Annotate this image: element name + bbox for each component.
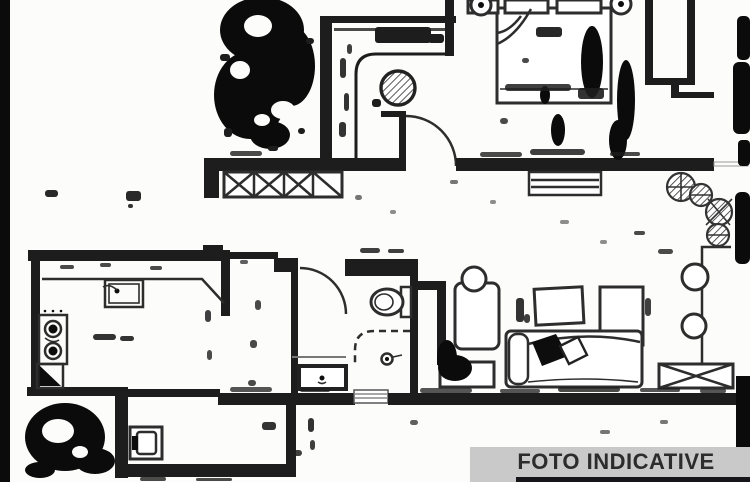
wall-segment — [687, 0, 695, 84]
potted-plants — [667, 173, 732, 246]
scan-speckle — [292, 450, 302, 456]
scan-speckle — [355, 195, 362, 200]
scan-speckle — [126, 191, 141, 201]
wall-segment — [127, 389, 220, 397]
scan-speckle — [536, 27, 562, 37]
scan-speckle — [522, 58, 529, 63]
scan-speckle — [308, 418, 314, 432]
wall-segment — [203, 245, 223, 253]
scan-speckle — [516, 298, 524, 322]
ink-blob-hole — [271, 101, 295, 119]
scan-speckle — [240, 260, 248, 264]
scan-speckle — [428, 34, 444, 43]
floor-plan-page: FOTO INDICATIVE — [0, 0, 750, 482]
scan-speckle — [610, 152, 640, 156]
scan-speckle — [560, 220, 569, 224]
counter-edge — [42, 279, 224, 303]
wall-segment — [274, 258, 298, 272]
wall-segment — [291, 272, 298, 395]
ink-blob — [581, 26, 603, 98]
scan-speckle — [310, 440, 315, 450]
ink-blob — [437, 340, 457, 376]
scan-speckle — [230, 387, 272, 392]
bottom-dark-strip — [516, 477, 750, 482]
scan-speckle — [388, 249, 404, 253]
scan-speckle — [150, 266, 162, 270]
ink-blob — [25, 462, 55, 478]
wall-segment — [320, 16, 332, 162]
stove-two-burners — [39, 310, 67, 364]
balcony-partition — [702, 247, 731, 364]
nightstand-lamp-right — [611, 0, 631, 14]
washing-machine — [130, 427, 162, 459]
scan-speckle — [347, 44, 352, 54]
round-hatched-table — [381, 71, 415, 105]
wall-segment — [28, 250, 230, 261]
wall-segment — [345, 259, 418, 276]
scan-speckle — [220, 54, 230, 61]
scan-speckle — [60, 265, 74, 269]
edge-ink-bar — [738, 140, 750, 166]
ink-blob — [551, 114, 565, 146]
wall-segment — [410, 259, 418, 397]
scan-speckle — [140, 477, 166, 481]
wall-segment — [115, 464, 296, 477]
wall-segment — [204, 158, 219, 198]
wall-segment — [645, 78, 695, 85]
wall-segment — [456, 158, 714, 171]
wall-segment — [228, 252, 278, 259]
scan-speckle — [268, 146, 278, 151]
scan-speckle — [196, 478, 232, 481]
wall-segment — [388, 393, 736, 405]
scan-speckle — [640, 388, 680, 392]
ink-blob-hole — [254, 114, 270, 126]
hallway-door-arc — [406, 116, 456, 166]
banner-label: FOTO INDICATIVE — [517, 449, 714, 475]
scan-speckle — [500, 389, 540, 393]
edge-ink-bar — [735, 192, 750, 264]
edge-ink-bar — [0, 0, 10, 482]
ink-blob — [267, 26, 315, 106]
scan-speckle — [700, 389, 726, 393]
scan-speckle — [490, 200, 496, 204]
scan-speckle — [207, 350, 212, 360]
scan-speckle — [480, 152, 522, 157]
ink-blob-hole — [244, 15, 272, 37]
wall-segment — [381, 111, 406, 117]
floor-plan-drawing — [0, 0, 750, 482]
scan-speckle — [530, 149, 585, 155]
scan-speckle — [250, 340, 257, 348]
scan-speckle — [360, 248, 380, 253]
scan-speckle — [600, 430, 610, 434]
floor-grate-x-box — [659, 364, 733, 388]
scan-speckle — [255, 300, 261, 310]
scan-speckle — [298, 128, 305, 134]
wall-segment — [645, 0, 653, 84]
armchair — [455, 267, 499, 349]
wall-segment — [221, 252, 230, 316]
stool-circle — [682, 264, 708, 290]
ink-blob — [250, 121, 290, 149]
scan-speckle — [248, 380, 256, 386]
ink-blob-hole — [42, 419, 74, 443]
scan-speckle — [230, 151, 262, 156]
toilet — [371, 287, 411, 317]
pillow-right — [557, 0, 601, 13]
scan-speckle — [205, 310, 211, 322]
sofa — [506, 331, 642, 387]
scan-noise-layer — [0, 0, 750, 482]
scan-speckle — [306, 38, 314, 44]
scan-speckle — [300, 388, 330, 392]
scan-speckle — [524, 314, 530, 323]
scan-speckle — [645, 298, 651, 316]
scan-speckle — [634, 231, 645, 235]
scan-speckle — [450, 180, 458, 184]
plant-circle — [462, 267, 486, 291]
wall-layer — [27, 0, 748, 478]
edge-ink-bar — [736, 376, 750, 447]
scan-speckle — [558, 387, 620, 392]
scan-speckle — [410, 420, 418, 425]
scan-speckle — [658, 249, 673, 254]
wall-segment — [286, 403, 296, 477]
scan-speckle — [372, 99, 381, 107]
wall-segment — [320, 16, 456, 23]
tilted-frame — [534, 287, 584, 325]
wall-segment — [671, 92, 714, 98]
scan-speckle — [120, 336, 134, 341]
ink-blob-hole — [72, 446, 88, 458]
scan-speckle — [339, 122, 346, 137]
scan-speckle — [500, 118, 508, 124]
door-threshold — [354, 390, 388, 403]
scan-speckle — [93, 334, 116, 340]
shower-drain — [382, 354, 403, 365]
scan-speckle — [660, 420, 668, 424]
scan-speckle — [45, 190, 58, 197]
washbasin — [292, 357, 346, 389]
window-sill-x-hatch — [224, 172, 342, 197]
edge-ink-bar — [737, 16, 750, 60]
scan-speckle — [420, 388, 472, 393]
pillow-left — [505, 0, 548, 13]
scan-speckle — [505, 84, 571, 91]
stool-circle — [682, 314, 706, 338]
scan-speckle — [224, 128, 232, 137]
wall-segment — [445, 0, 454, 56]
scan-speckle — [340, 58, 346, 78]
nightstand-lamp-left — [468, 0, 498, 15]
scan-speckle — [390, 210, 396, 214]
bathroom-door-arc — [300, 268, 346, 314]
scan-speckle — [578, 88, 604, 99]
corner-unit — [37, 364, 63, 388]
edge-ink-bar — [733, 62, 750, 134]
scan-speckle — [100, 263, 111, 267]
scan-speckle — [128, 204, 133, 208]
scan-speckle — [600, 240, 607, 244]
scan-speckle — [375, 27, 431, 43]
wall-segment — [204, 158, 406, 171]
kitchen-sink — [103, 280, 143, 307]
ink-blob-hole — [230, 61, 250, 79]
scan-speckle — [262, 422, 276, 430]
wall-segment — [399, 111, 406, 162]
scan-speckle — [344, 93, 349, 111]
radiator — [529, 172, 601, 195]
